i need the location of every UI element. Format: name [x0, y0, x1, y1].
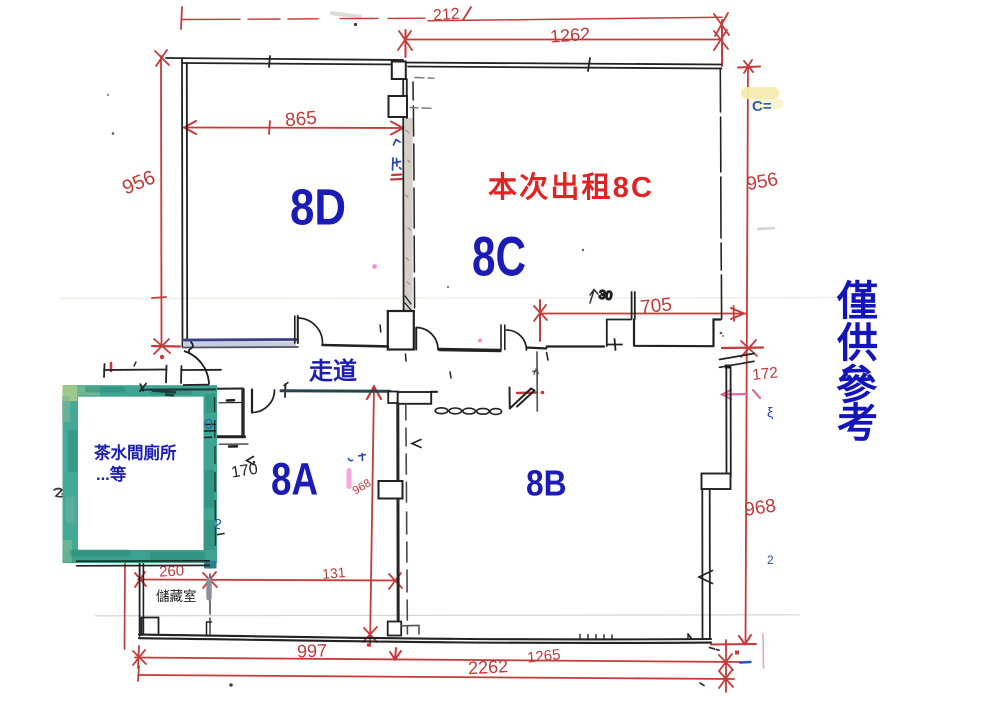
svg-text:212: 212 [433, 6, 461, 25]
svg-text:8D: 8D [290, 179, 346, 236]
svg-text:ξ: ξ [767, 404, 773, 420]
svg-text:172: 172 [751, 364, 779, 384]
svg-text:儲藏室: 儲藏室 [156, 588, 197, 604]
svg-text:8B: 8B [526, 463, 567, 504]
svg-text:997: 997 [297, 640, 328, 661]
svg-text:考: 考 [837, 400, 878, 446]
svg-text:8C: 8C [472, 225, 526, 288]
svg-text:茶水間廁所: 茶水間廁所 [94, 443, 177, 463]
svg-text:...等: ...等 [96, 464, 127, 484]
svg-text:8A: 8A [271, 454, 318, 505]
svg-text:2262: 2262 [468, 656, 509, 678]
svg-text:1262: 1262 [549, 24, 590, 47]
svg-text:968: 968 [743, 496, 777, 521]
svg-text:供: 供 [837, 320, 878, 366]
svg-text:C=: C= [752, 98, 772, 115]
svg-text:僅: 僅 [836, 278, 878, 324]
svg-text:2: 2 [767, 553, 774, 567]
svg-text:30: 30 [598, 287, 613, 303]
svg-text:走道: 走道 [309, 357, 357, 385]
svg-text:本次出租8C: 本次出租8C [488, 171, 652, 204]
svg-text:865: 865 [284, 108, 317, 132]
svg-text:1265: 1265 [526, 646, 561, 666]
svg-text:705: 705 [639, 294, 673, 318]
svg-text:131: 131 [321, 564, 346, 582]
